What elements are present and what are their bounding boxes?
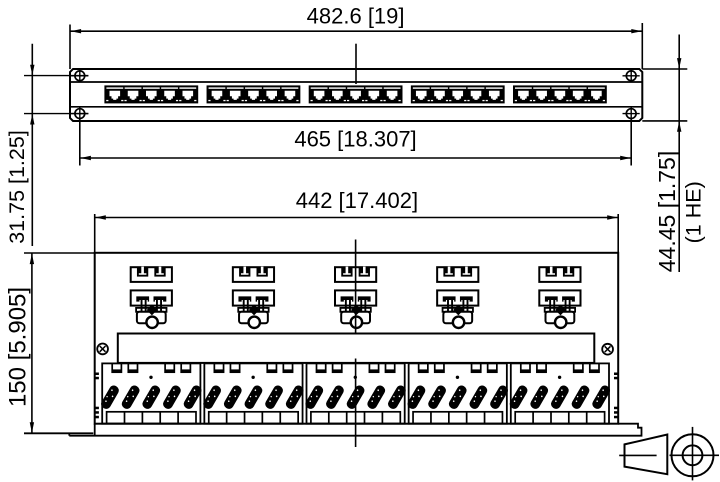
svg-text:31.75 [1.25]: 31.75 [1.25] xyxy=(5,130,29,244)
svg-text:150 [5.905]: 150 [5.905] xyxy=(5,287,32,407)
svg-text:482.6 [19]: 482.6 [19] xyxy=(307,3,405,28)
svg-text:442 [17.402]: 442 [17.402] xyxy=(296,188,418,213)
svg-text:465 [18.307]: 465 [18.307] xyxy=(294,126,416,151)
svg-text:(1 HE): (1 HE) xyxy=(682,181,706,243)
svg-text:44.45 [1.75]: 44.45 [1.75] xyxy=(654,151,680,273)
